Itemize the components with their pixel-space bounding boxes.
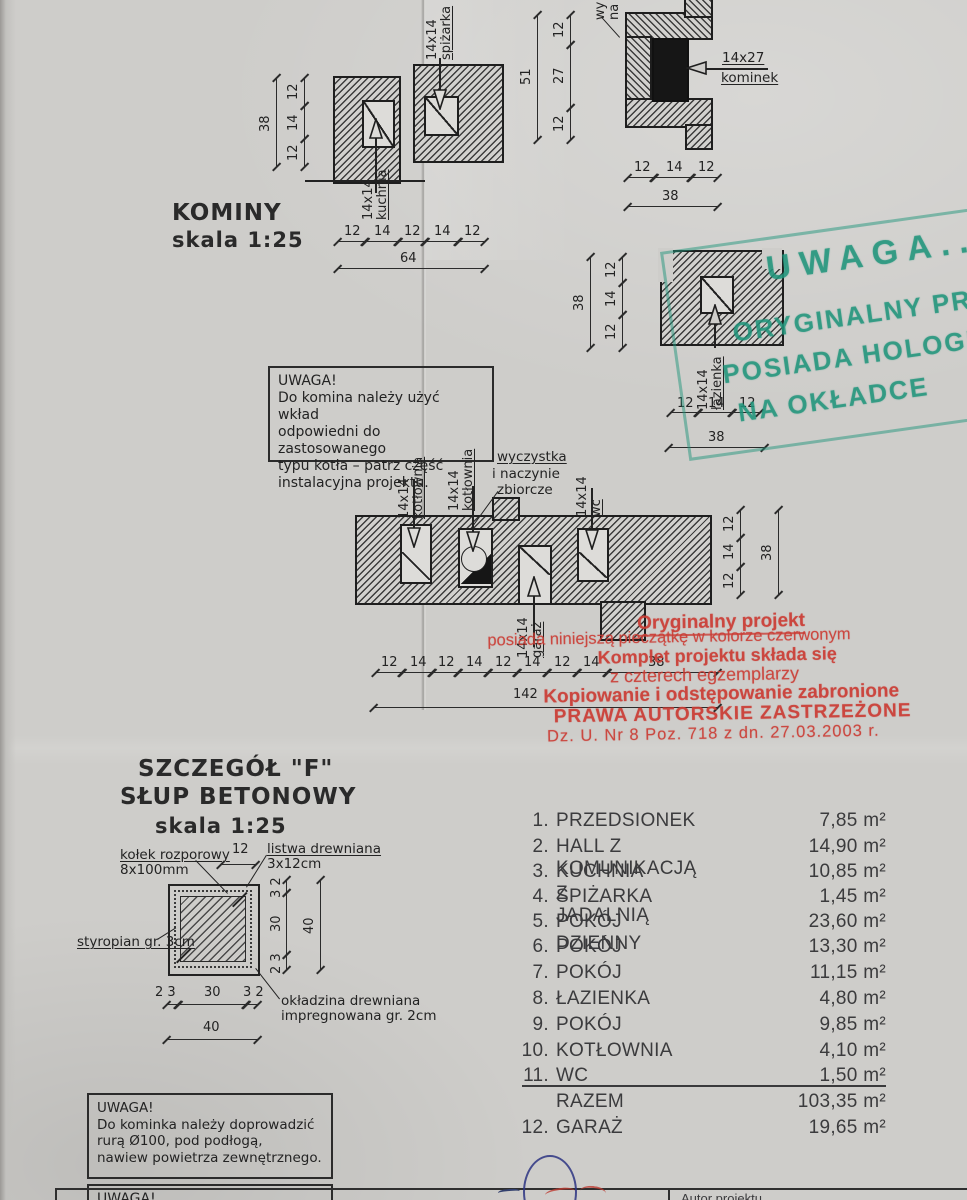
note-title: UWAGA! (97, 1100, 323, 1117)
room-area: 10,85 m² (700, 861, 886, 883)
dim-line (304, 139, 305, 167)
dim-label: 3 2 (270, 877, 283, 898)
dim-label: 38 (573, 294, 586, 311)
chimney4-top-stub (492, 497, 520, 521)
dim-line (458, 672, 488, 673)
flue-label-spizarka: 14x14spiżarka (426, 6, 454, 60)
dim-line (276, 78, 277, 167)
chimney2-top-right (684, 0, 713, 18)
callout-listwa-line1: listwa drewniana (267, 841, 381, 857)
flue-diagonal (402, 552, 430, 580)
dim-label: 14 (434, 225, 451, 238)
callout-styropian: styropian gr. 3cm (77, 934, 195, 950)
arrow-left-icon (686, 60, 708, 76)
dim-label: 12 (404, 225, 421, 238)
green-stamp: UWAGA..! ORYGINALNY PROJEKT POSIADA HOLO… (660, 203, 967, 461)
room-name: GARAŻ (556, 1117, 623, 1139)
flue-label-kominek-size: 14x27 (722, 50, 764, 66)
titleblock-autor-label: Autor projektu (681, 1191, 762, 1200)
note-line: rurą Ø100, pod podłogą, (97, 1133, 323, 1150)
dim-label: 14 (374, 225, 391, 238)
flue-diagonal (579, 552, 607, 578)
room-area: 11,15 m² (700, 962, 886, 984)
dim-label: 12 (605, 261, 618, 278)
arrow-down-icon (432, 88, 448, 110)
room-area: 7,85 m² (700, 810, 886, 832)
dim-label: 3 2 (243, 986, 264, 999)
dim-label: 30 (270, 915, 283, 932)
dim-label: 14 (466, 656, 483, 669)
note-kominek-box: UWAGA! Do kominka należy doprowadzić rur… (87, 1093, 333, 1179)
arrow-down-icon (465, 530, 481, 552)
dim-line (425, 241, 458, 242)
dim-label: 12 (232, 843, 249, 856)
dim-line (246, 1004, 258, 1005)
dim-line (166, 1039, 258, 1040)
dim-line (432, 672, 458, 673)
dim-label: 12 (723, 515, 736, 532)
dim-line (654, 177, 691, 178)
arrow-down-icon (406, 526, 422, 548)
note-title: UWAGA! (278, 373, 484, 390)
dim-label: 12 (698, 161, 715, 174)
chimney2-flue-kominek (652, 38, 689, 102)
room-number: 10. (515, 1040, 549, 1062)
flue-label-kotlownia2: 14x14kotłownia (448, 449, 476, 511)
room-number: 7. (515, 962, 549, 984)
dim-line (402, 672, 432, 673)
dim-label: 38 (761, 544, 774, 561)
chimney2-bottom-step (685, 124, 713, 150)
dim-line (778, 510, 779, 595)
green-stamp-line1: UWAGA..! (764, 218, 967, 289)
dim-label: 12 (438, 656, 455, 669)
titleblock-left-edge (55, 1188, 57, 1200)
room-number: 8. (515, 988, 549, 1010)
room-number: 6. (515, 936, 549, 958)
total-area: 103,35 m² (700, 1091, 886, 1113)
room-number: 3. (515, 861, 549, 883)
room-number: 4. (515, 886, 549, 908)
dim-label: 27 (553, 67, 566, 84)
dim-line (375, 672, 402, 673)
dim-line (740, 567, 741, 595)
room-area: 4,10 m² (700, 1040, 886, 1062)
handwritten-red-stroke (579, 1185, 606, 1200)
dim-label: 12 (344, 225, 361, 238)
callout-kolek-line2: 8x100mm (120, 862, 189, 878)
dim-line (740, 510, 741, 538)
dim-label: 14 (287, 114, 300, 131)
room-name: KOTŁOWNIA (556, 1040, 673, 1062)
dim-line (178, 1004, 246, 1005)
dim-line (458, 241, 485, 242)
dim-label: 12 (723, 572, 736, 589)
room-name: POKÓJ (556, 936, 622, 958)
chimney2-left-column (625, 36, 652, 102)
note-bottom-box: UWAGA! (87, 1184, 333, 1200)
dim-line (337, 241, 365, 242)
room-name: SPIŻARKA (556, 886, 652, 908)
section-scale-kominy: skala 1:25 (172, 228, 304, 252)
dim-line (286, 955, 287, 970)
dim-label: 40 (303, 917, 316, 934)
dim-line (590, 257, 591, 348)
wyczystka-label-line3: zbiorcze (497, 482, 553, 498)
flue-label-wc: 14x14wc (576, 476, 604, 517)
callout-okladzina-line2: impregnowana gr. 2cm (281, 1008, 436, 1024)
partial-top-label: wyna (594, 2, 622, 20)
dim-line (304, 106, 305, 139)
titleblock-divider (668, 1188, 670, 1200)
dim-label: 40 (203, 1021, 220, 1034)
detail-f-scale: skala 1:25 (155, 814, 287, 838)
room-name: PRZEDSIONEK (556, 810, 696, 832)
room-number: 2. (515, 836, 549, 858)
dim-label: 2 3 (155, 986, 176, 999)
note-line: nawiew powietrza zewnętrznego. (97, 1150, 323, 1167)
arrow-up-icon (526, 576, 542, 598)
dim-line (286, 893, 287, 955)
dim-line (627, 177, 654, 178)
room-number: 5. (515, 911, 549, 933)
room-name: ŁAZIENKA (556, 988, 650, 1010)
dim-line (337, 268, 485, 269)
dim-line (537, 15, 538, 140)
room-area: 19,65 m² (700, 1117, 886, 1139)
dim-line (304, 78, 305, 106)
dim-label: 38 (662, 190, 679, 203)
flue-label-kominek-name: kominek (721, 70, 778, 86)
callout-kolek-line1: kołek rozporowy (120, 847, 230, 863)
partial-label-leader (601, 17, 620, 38)
dim-line (398, 241, 425, 242)
dim-label: 64 (400, 252, 417, 265)
room-area: 9,85 m² (700, 1014, 886, 1036)
room-name: WC (556, 1065, 588, 1087)
red-stamp: Oryginalny projekt posiada niniejszą pie… (487, 609, 889, 741)
dim-label: 12 (553, 115, 566, 132)
dim-line (320, 880, 321, 970)
flue-label-kotlownia1: 14x14kotłownia (398, 457, 426, 519)
section-title-kominy: KOMINY (172, 200, 282, 226)
dim-line (570, 45, 571, 108)
room-area: 4,80 m² (700, 988, 886, 1010)
dim-line (365, 241, 398, 242)
room-area: 23,60 m² (700, 911, 886, 933)
note-line: Do komina należy użyć wkład (278, 390, 484, 424)
scanned-drawing-sheet: 14x14spiżarka 14x14kuchnia 38 12 14 12 1… (0, 0, 967, 1200)
dim-label: 38 (259, 115, 272, 132)
dim-line (622, 257, 623, 283)
room-area: 1,50 m² (700, 1065, 886, 1087)
room-name: POKÓJ (556, 1014, 622, 1036)
note-komin-box: UWAGA! Do komina należy użyć wkład odpow… (268, 366, 494, 462)
dim-label: 12 (287, 83, 300, 100)
detail-f-title2: SŁUP BETONOWY (120, 784, 356, 810)
room-number: 1. (515, 810, 549, 832)
wyczystka-label-line2: i naczynie (492, 466, 560, 482)
dim-label: 30 (204, 986, 221, 999)
dim-label: 2 3 (270, 953, 283, 974)
dim-label: 14 (723, 543, 736, 560)
note-line: Do kominka należy doprowadzić (97, 1117, 323, 1134)
room-number: 9. (515, 1014, 549, 1036)
detail-f-title1: SZCZEGÓŁ "F" (138, 756, 333, 782)
dim-line (622, 315, 623, 348)
dim-line (570, 15, 571, 45)
total-label: RAZEM (556, 1091, 624, 1113)
dim-line (627, 206, 718, 207)
handwritten-ink-stroke (498, 1188, 521, 1198)
dim-label: 14 (666, 161, 683, 174)
room-area: 13,30 m² (700, 936, 886, 958)
dim-line (740, 538, 741, 567)
rooms-total-rule (522, 1085, 886, 1087)
room-area: 1,45 m² (700, 886, 886, 908)
dim-label: 12 (553, 21, 566, 38)
dim-line (220, 864, 256, 865)
arrow-up-icon (368, 118, 384, 140)
dim-line (570, 108, 571, 140)
dim-label: 12 (634, 161, 651, 174)
dim-label: 12 (605, 323, 618, 340)
dim-line (691, 177, 718, 178)
listwa-leader (246, 855, 267, 888)
flue-diagonal (520, 547, 550, 575)
room-name: POKÓJ (556, 962, 622, 984)
callout-okladzina-line1: okładzina drewniana (281, 993, 420, 1009)
dim-label: 14 (410, 656, 427, 669)
room-area: 14,90 m² (700, 836, 886, 858)
callout-listwa-line2: 3x12cm (267, 856, 321, 872)
room-number: 11. (515, 1065, 549, 1087)
dim-label: 12 (287, 144, 300, 161)
arrow-down-icon (584, 528, 600, 550)
concrete-core (180, 896, 246, 962)
dim-label: 12 (381, 656, 398, 669)
dim-label: 51 (520, 68, 533, 85)
note-title: UWAGA! (97, 1191, 323, 1200)
wyczystka-label-line1: wyczystka (497, 449, 567, 465)
flue-label-kuchnia: 14x14kuchnia (362, 169, 390, 220)
dim-label: 14 (605, 290, 618, 307)
room-number: 12. (515, 1117, 549, 1139)
dim-line (622, 283, 623, 315)
dim-label: 12 (464, 225, 481, 238)
